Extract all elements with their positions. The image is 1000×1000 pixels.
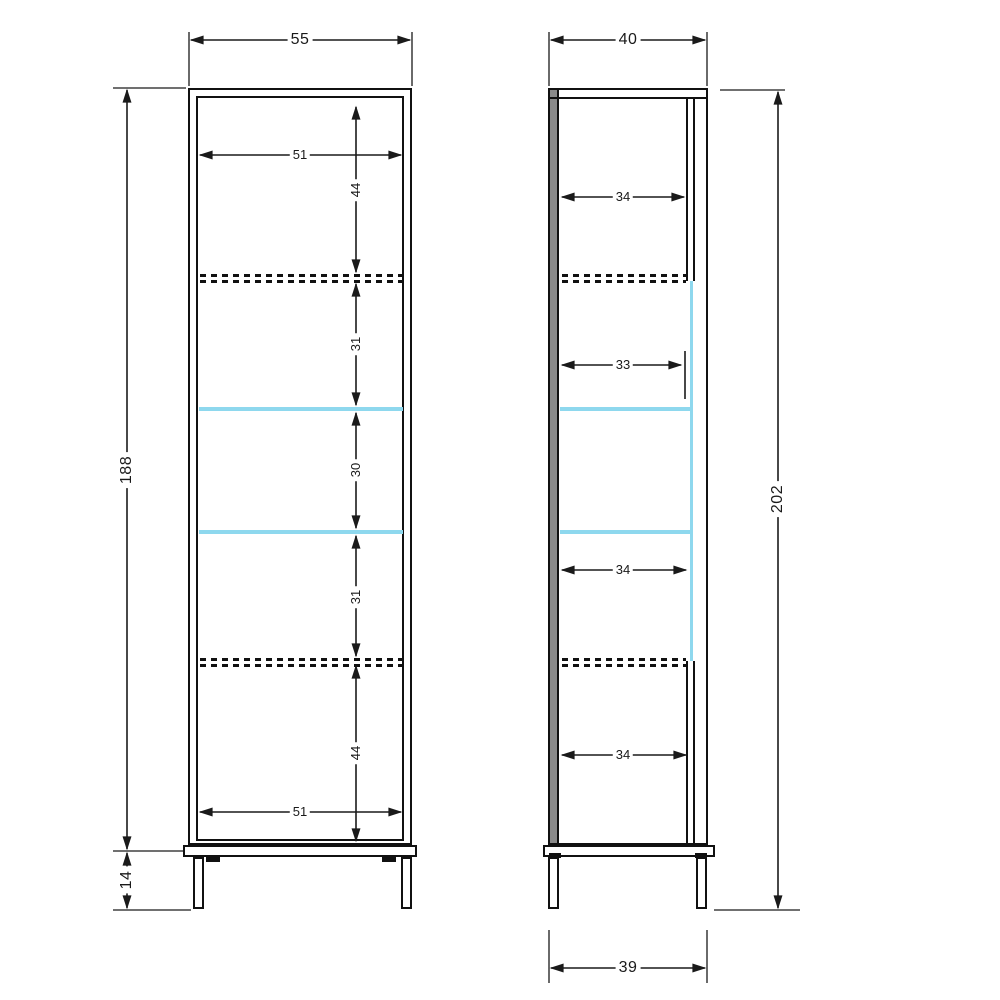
dim-label-side-shelf-depth-glass: 33 [613, 358, 633, 372]
dim-label-front-overall-width: 55 [288, 31, 313, 49]
dim-side-overall-height [714, 90, 800, 910]
dimension-lines [0, 0, 1000, 1000]
dim-label-front-carcass-height: 188 [118, 452, 136, 488]
dim-label-front-interior-width-top: 51 [290, 148, 310, 162]
dim-label-front-section-bottom: 44 [349, 742, 363, 764]
dim-label-front-section-lower: 31 [349, 586, 363, 608]
dim-label-side-overall-depth: 40 [616, 31, 641, 49]
dim-label-side-shelf-depth-lower: 34 [613, 563, 633, 577]
dim-label-side-overall-height: 202 [769, 481, 787, 517]
dim-front-carcass-height [113, 88, 191, 910]
dim-label-front-interior-width-bottom: 51 [290, 805, 310, 819]
dim-label-front-leg-height: 14 [118, 867, 136, 894]
dim-label-front-section-upper: 31 [349, 333, 363, 355]
dim-label-front-section-middle: 30 [349, 459, 363, 481]
dim-label-side-base-depth: 39 [616, 959, 641, 977]
dim-label-front-section-top: 44 [349, 179, 363, 201]
dimension-drawing-canvas: 55 51 51 44 31 30 31 44 188 14 40 34 33 … [0, 0, 1000, 1000]
dim-label-side-shelf-depth-top: 34 [613, 190, 633, 204]
dim-label-side-shelf-depth-bottom: 34 [613, 748, 633, 762]
